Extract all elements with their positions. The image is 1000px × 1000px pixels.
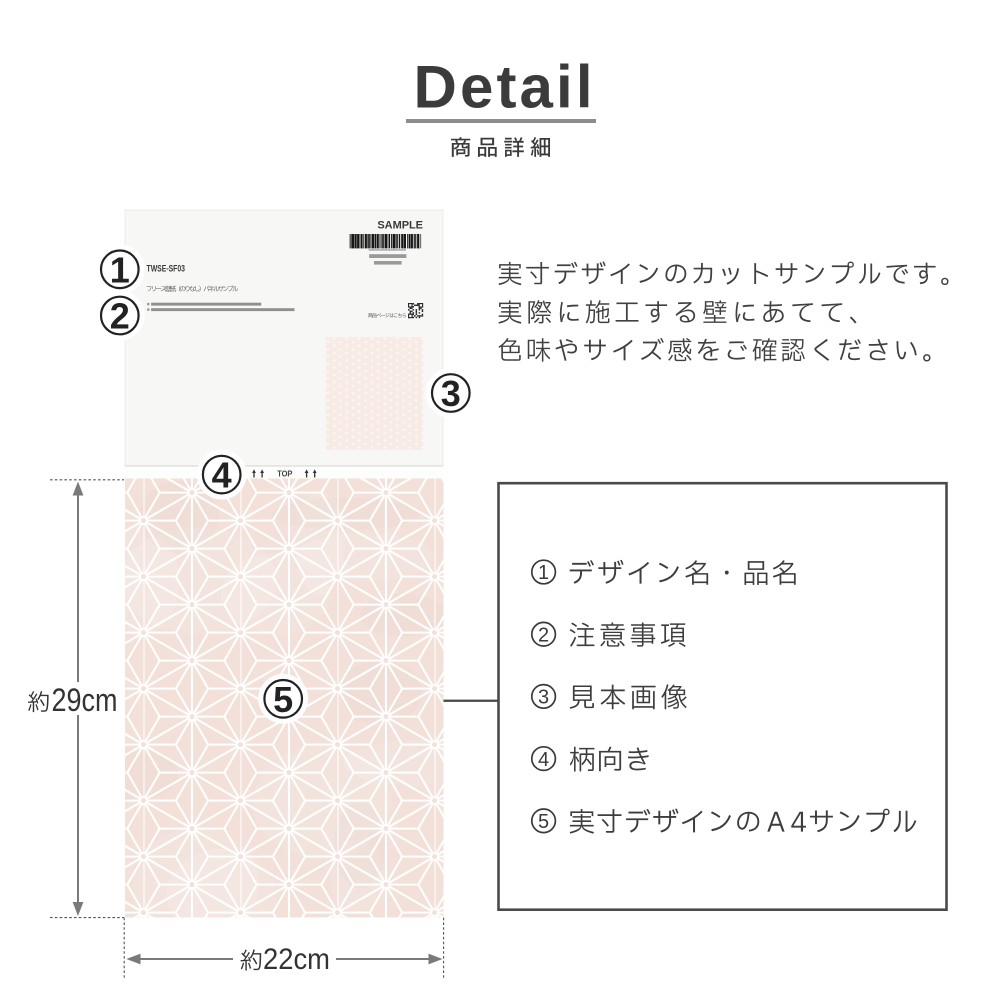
svg-text:Detail: Detail: [414, 54, 593, 121]
svg-text:2: 2: [110, 296, 130, 337]
svg-text:3: 3: [441, 373, 461, 414]
svg-text:4: 4: [212, 455, 232, 496]
svg-text:22cm: 22cm: [263, 943, 330, 976]
svg-text:3: 3: [538, 687, 549, 709]
svg-text:5: 5: [538, 811, 549, 833]
svg-text:4: 4: [538, 749, 549, 771]
svg-text:1: 1: [110, 249, 130, 290]
svg-text:29cm: 29cm: [52, 682, 118, 718]
svg-text:1: 1: [538, 562, 549, 584]
svg-text:5: 5: [273, 679, 293, 720]
svg-text:TOP: TOP: [277, 469, 293, 478]
svg-text:2: 2: [538, 624, 549, 646]
svg-text:TWSE-SF03: TWSE-SF03: [147, 263, 186, 273]
svg-text:SAMPLE: SAMPLE: [377, 220, 423, 232]
